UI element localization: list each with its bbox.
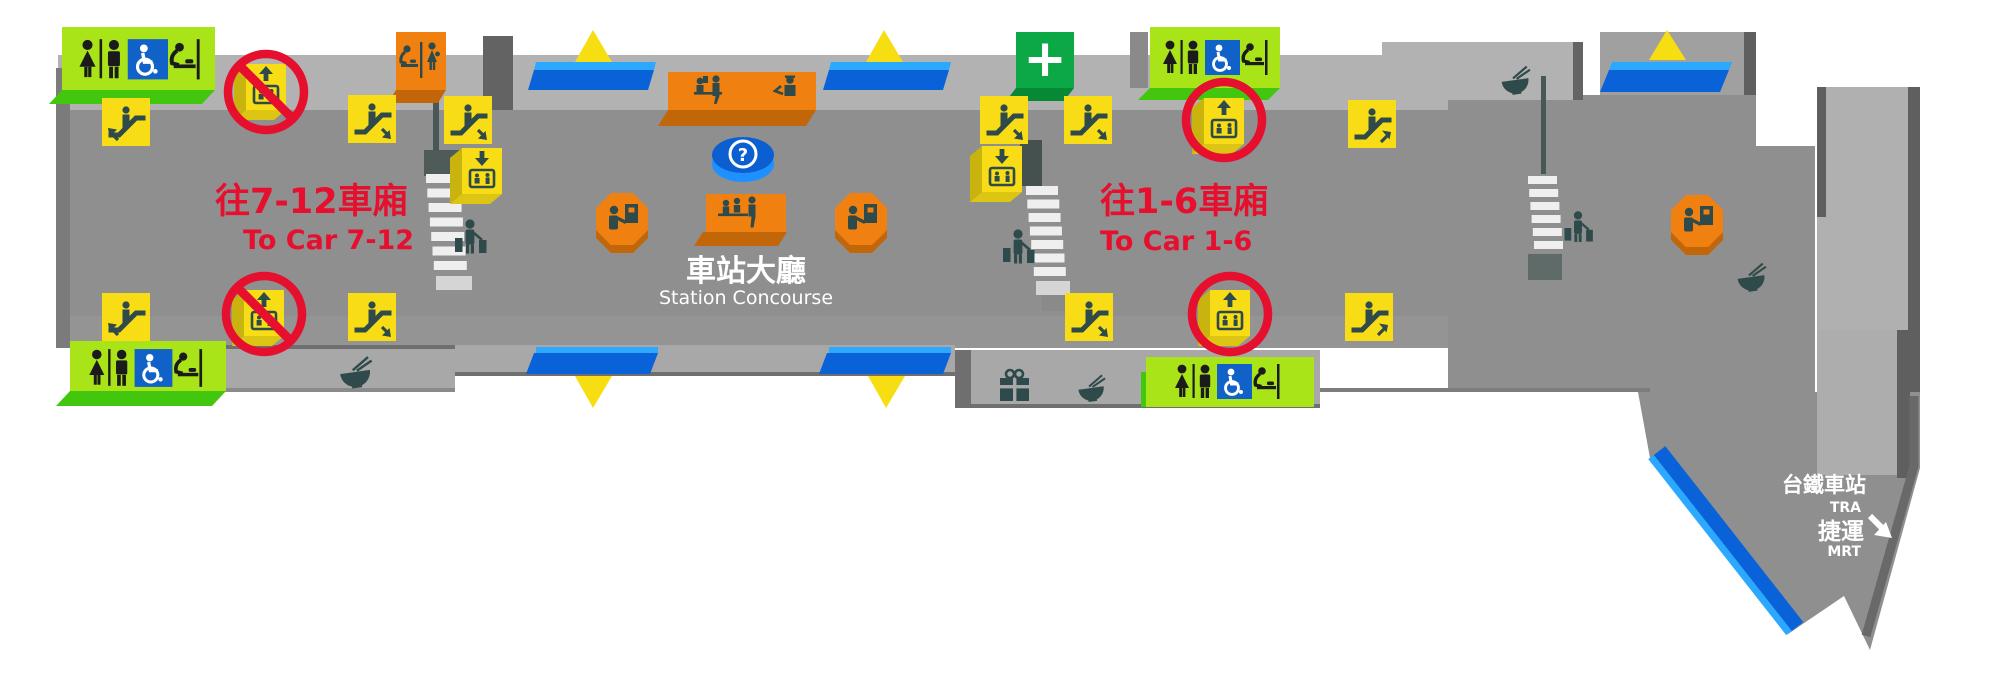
station-floor-map: + ? bbox=[0, 0, 1990, 684]
ticket-machine-icon bbox=[1671, 195, 1723, 255]
escalator-icon bbox=[1065, 293, 1113, 341]
info-point: ? bbox=[712, 137, 774, 182]
concourse-zh: 車站大廳 bbox=[686, 254, 806, 289]
fare-gate bbox=[526, 353, 658, 374]
escalator-icon bbox=[348, 95, 396, 143]
void bbox=[1756, 28, 1816, 146]
escalator-icon bbox=[1345, 293, 1393, 341]
escalator-icon bbox=[980, 96, 1028, 144]
mrt-zh: 捷運 bbox=[1818, 519, 1864, 545]
escalator-icon bbox=[348, 293, 396, 341]
mrt-en: MRT bbox=[1827, 544, 1861, 560]
info-question-mark: ? bbox=[738, 145, 748, 166]
service-counter-block bbox=[658, 72, 816, 126]
fare-gate bbox=[823, 70, 949, 90]
direction-label-car-1-6: 往1-6車廂 To Car 1-6 bbox=[1100, 182, 1268, 257]
shelf-corner-wall bbox=[955, 350, 971, 408]
to-car-1-6-en: To Car 1-6 bbox=[1100, 226, 1252, 257]
wing-wall-face bbox=[1817, 330, 1905, 475]
wing-wall-edge bbox=[1897, 330, 1910, 478]
exit-arrow-down bbox=[575, 376, 612, 408]
wall-gap bbox=[1130, 32, 1148, 88]
escalator-icon bbox=[1064, 96, 1112, 144]
ticket-machine-icon bbox=[596, 193, 648, 253]
nursing-room-block bbox=[388, 32, 446, 103]
tra-en: TRA bbox=[1830, 500, 1861, 516]
concourse-en: Station Concourse bbox=[659, 287, 833, 309]
elevator-down-icon bbox=[450, 148, 502, 204]
right-upper-shelf bbox=[1382, 42, 1578, 100]
direction-label-car-7-12: 往7-12車廂 To Car 7-12 bbox=[215, 182, 414, 256]
gate-stripe bbox=[534, 62, 656, 70]
fare-gate bbox=[1600, 70, 1729, 92]
restroom-block-bottom-right bbox=[1141, 357, 1314, 407]
restroom-block-top-left bbox=[49, 27, 215, 104]
fare-gate bbox=[819, 353, 951, 374]
entrance-arrow-up bbox=[866, 30, 903, 62]
gate-stripe bbox=[829, 347, 951, 353]
gate-stripe bbox=[1609, 62, 1732, 70]
to-car-1-6-zh: 往1-6車廂 bbox=[1100, 182, 1268, 222]
escalator-icon bbox=[102, 293, 150, 341]
entrance-arrow-up bbox=[575, 30, 612, 62]
escalator-icon bbox=[444, 96, 492, 144]
gate-stripe bbox=[536, 347, 658, 353]
shelf-edge bbox=[1573, 42, 1583, 100]
corridor-edge-left bbox=[1817, 87, 1826, 217]
first-aid-cross: + bbox=[1023, 29, 1067, 89]
left-wall-edge bbox=[56, 68, 70, 348]
escalator-icon bbox=[102, 98, 150, 146]
first-aid-block: + bbox=[1006, 29, 1074, 101]
exit-arrow-down bbox=[868, 376, 905, 408]
edge-shadow bbox=[1320, 388, 1650, 392]
escalator-icon bbox=[1348, 100, 1396, 148]
tra-zh: 台鐵車站 bbox=[1782, 473, 1866, 497]
to-car-7-12-en: To Car 7-12 bbox=[243, 225, 414, 256]
to-car-7-12-zh: 往7-12車廂 bbox=[215, 182, 408, 222]
ticket-machine-icon bbox=[835, 193, 887, 253]
entrance-block-edge bbox=[1744, 32, 1756, 95]
station-map-canvas: + ? bbox=[0, 0, 1990, 684]
elevator-down-icon bbox=[970, 146, 1022, 202]
edge-shadow bbox=[225, 388, 455, 392]
ticket-counter-block bbox=[694, 194, 787, 246]
fare-gate bbox=[528, 70, 654, 90]
restroom-block-bottom-left bbox=[56, 341, 226, 406]
gate-stripe bbox=[829, 62, 951, 70]
